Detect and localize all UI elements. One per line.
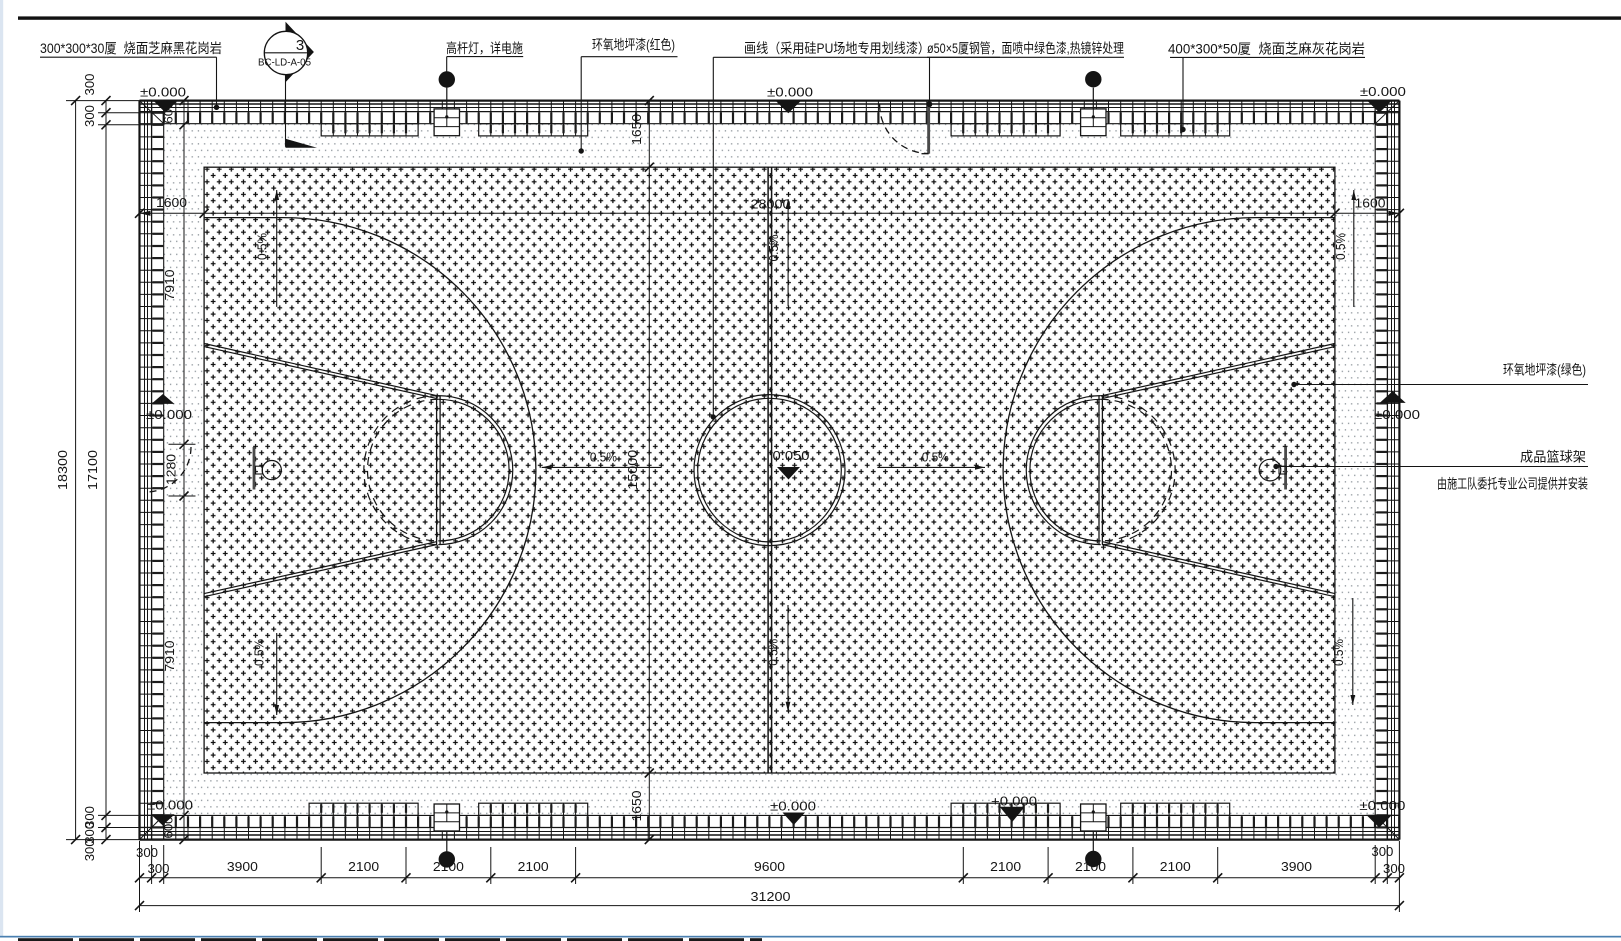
svg-text:±0.000: ±0.000	[1359, 798, 1405, 813]
svg-text:环氧地坪漆(红色): 环氧地坪漆(红色)	[592, 37, 675, 53]
svg-text:1600: 1600	[156, 195, 187, 210]
svg-text:2100: 2100	[1075, 859, 1106, 874]
svg-text:400*300*50厦 烧面芝麻灰花岗岩: 400*300*50厦 烧面芝麻灰花岗岩	[1168, 42, 1365, 57]
svg-text:±0.000: ±0.000	[1360, 84, 1406, 99]
svg-text:300: 300	[82, 105, 97, 127]
svg-text:300: 300	[82, 74, 97, 96]
svg-text:28000: 28000	[751, 197, 791, 212]
svg-text:±0.000: ±0.000	[140, 85, 186, 100]
svg-text:0.5%: 0.5%	[922, 450, 949, 464]
svg-text:300: 300	[82, 839, 97, 861]
svg-text:0.050: 0.050	[773, 448, 810, 463]
svg-text:环氧地坪漆(绿色): 环氧地坪漆(绿色)	[1503, 362, 1586, 378]
svg-text:成品篮球架: 成品篮球架	[1520, 450, 1586, 465]
svg-text:2100: 2100	[348, 859, 379, 874]
svg-text:由施工队委托专业公司提供并安装: 由施工队委托专业公司提供并安装	[1437, 477, 1588, 492]
svg-text:+0.000: +0.000	[991, 794, 1037, 809]
svg-text:9600: 9600	[754, 859, 785, 874]
svg-text:2100: 2100	[1160, 859, 1191, 874]
svg-text:0.5%: 0.5%	[767, 639, 781, 666]
svg-text:0.5%: 0.5%	[256, 233, 270, 260]
svg-text:1600: 1600	[1355, 195, 1386, 210]
svg-text:18300: 18300	[55, 450, 70, 490]
svg-text:±0.000: ±0.000	[146, 407, 192, 422]
svg-text:1650: 1650	[629, 114, 644, 145]
svg-text:BC-LD-A-05: BC-LD-A-05	[258, 57, 311, 69]
svg-text:300: 300	[1371, 844, 1393, 859]
svg-text:ø50×5厦钢管，面喷中绿色漆,热镜锌处理: ø50×5厦钢管，面喷中绿色漆,热镜锌处理	[927, 40, 1124, 56]
svg-text:±0.000: ±0.000	[147, 797, 193, 812]
svg-text:2100: 2100	[518, 859, 549, 874]
svg-text:±0.000: ±0.000	[1374, 407, 1420, 422]
svg-text:300: 300	[136, 845, 158, 860]
svg-text:17100: 17100	[85, 450, 100, 490]
svg-text:15000: 15000	[625, 450, 640, 490]
svg-text:1280: 1280	[164, 454, 179, 485]
svg-text:0.5%: 0.5%	[253, 639, 267, 666]
svg-text:300: 300	[1383, 861, 1405, 876]
svg-text:3900: 3900	[227, 859, 258, 874]
svg-text:3: 3	[296, 37, 304, 54]
svg-text:0.5%: 0.5%	[1334, 233, 1348, 260]
svg-text:3900: 3900	[1281, 859, 1312, 874]
svg-text:±0.000: ±0.000	[770, 799, 816, 814]
svg-text:0.5%: 0.5%	[1332, 639, 1346, 666]
svg-text:0.5%: 0.5%	[767, 235, 781, 262]
svg-text:1650: 1650	[629, 791, 644, 822]
svg-text:7910: 7910	[162, 270, 177, 301]
svg-text:画线（采用硅PU场地专用划线漆）: 画线（采用硅PU场地专用划线漆）	[744, 41, 930, 56]
svg-text:31200: 31200	[751, 889, 791, 904]
svg-text:高杆灯，详电施: 高杆灯，详电施	[446, 40, 523, 56]
svg-text:0.5%: 0.5%	[590, 450, 617, 464]
svg-text:2100: 2100	[433, 859, 464, 874]
svg-text:±0.000: ±0.000	[767, 85, 813, 100]
svg-text:7910: 7910	[162, 641, 177, 672]
svg-text:300*300*30厦 烧面芝麻黑花岗岩: 300*300*30厦 烧面芝麻黑花岗岩	[40, 41, 222, 56]
svg-text:300: 300	[148, 861, 170, 876]
svg-text:2100: 2100	[990, 859, 1021, 874]
